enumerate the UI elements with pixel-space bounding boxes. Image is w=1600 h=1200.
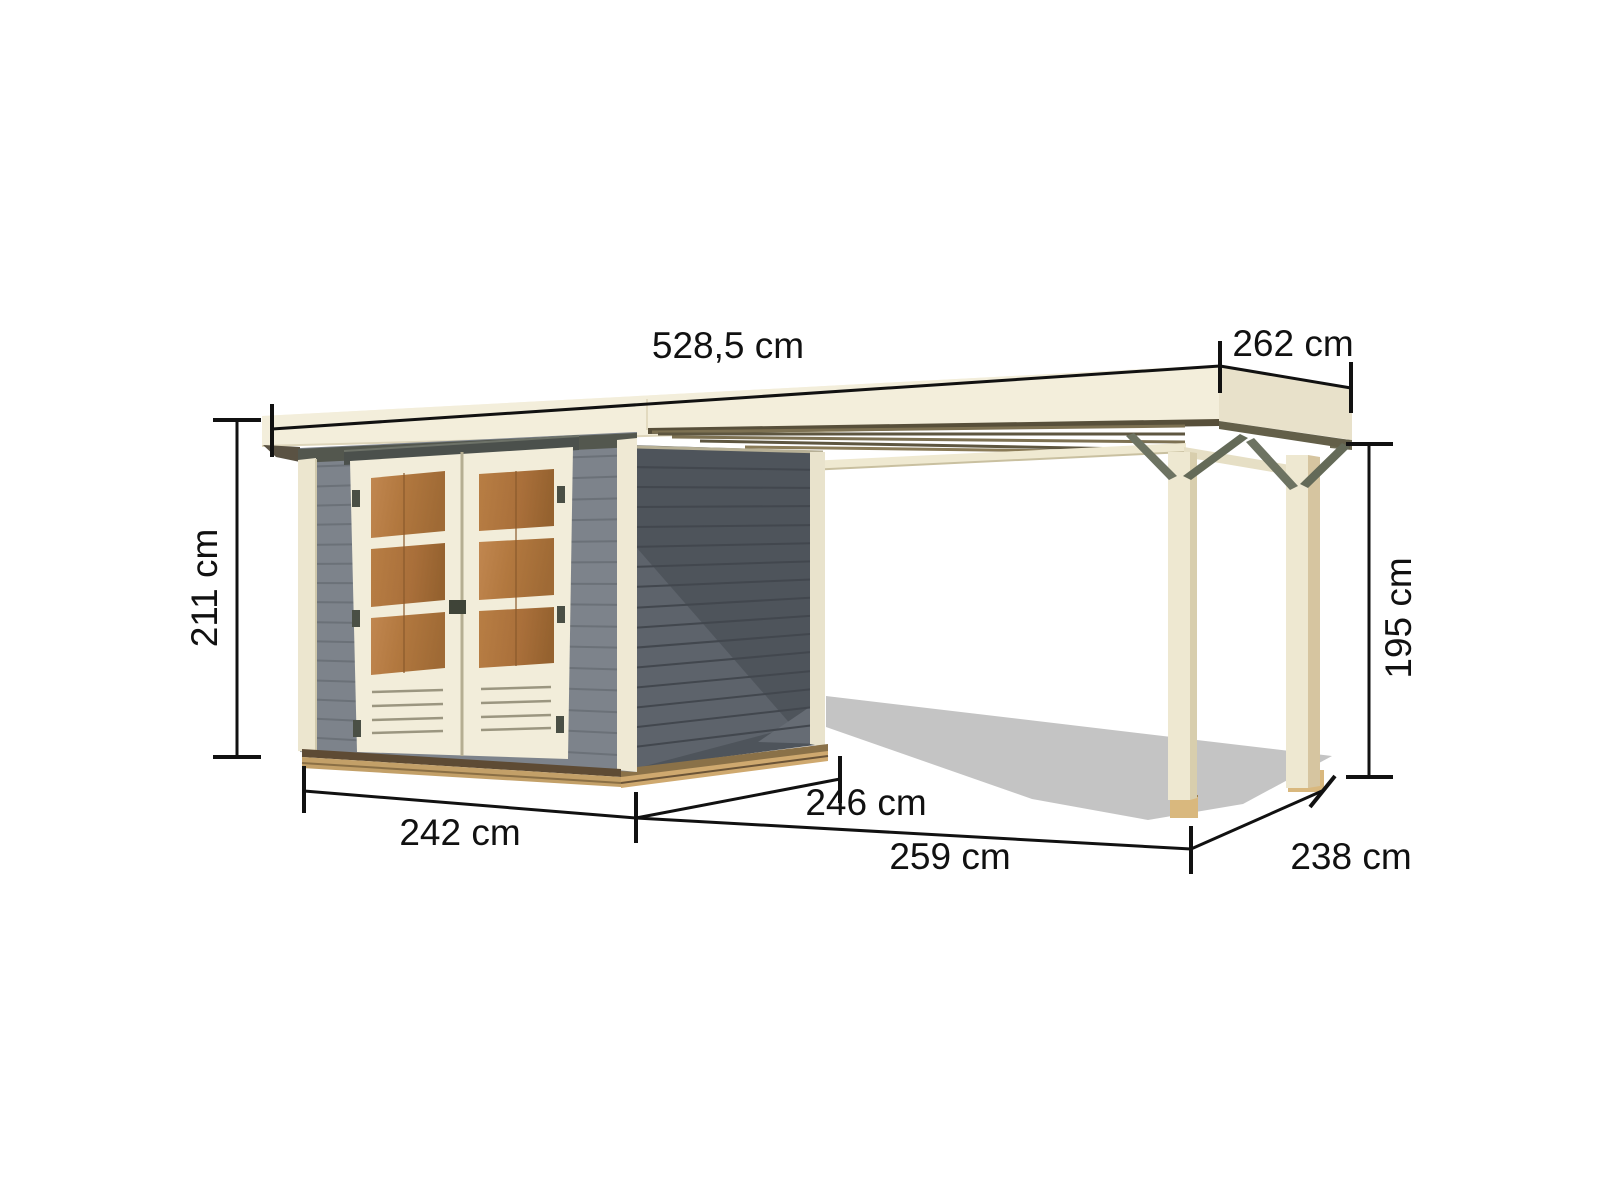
door-lock-plate — [449, 600, 466, 614]
dim-label-roof-side-depth: 262 cm — [1232, 323, 1353, 364]
door-pane — [371, 471, 445, 538]
shed-side-wall — [622, 445, 825, 770]
roof-left-soffit-shadow — [263, 445, 300, 462]
dim-label-shed-side-depth: 246 cm — [805, 782, 926, 823]
dim-label-shed-height: 211 cm — [184, 529, 225, 648]
dim-label-shed-width: 242 cm — [399, 812, 520, 853]
shed-front-wall — [298, 432, 637, 772]
dim-label-annex-height: 195 cm — [1378, 557, 1419, 678]
side-wall-back-corner-trim — [810, 452, 825, 747]
dim-label-annex-width: 259 cm — [889, 836, 1010, 877]
door-pane — [371, 543, 445, 607]
dim-label-annex-side-depth: 238 cm — [1290, 836, 1411, 877]
dim-label-roof-total-width: 528,5 cm — [652, 325, 804, 366]
front-right-corner-trim — [617, 438, 637, 772]
product-dimension-diagram: 528,5 cm 262 cm 211 cm 195 cm 242 cm 246… — [0, 0, 1600, 1200]
shed-diagram-svg: 528,5 cm 262 cm 211 cm 195 cm 242 cm 246… — [0, 0, 1600, 1200]
back-right-post — [1246, 438, 1350, 792]
double-door — [344, 435, 579, 759]
front-left-corner-trim — [298, 458, 316, 753]
door-pane — [371, 612, 445, 675]
